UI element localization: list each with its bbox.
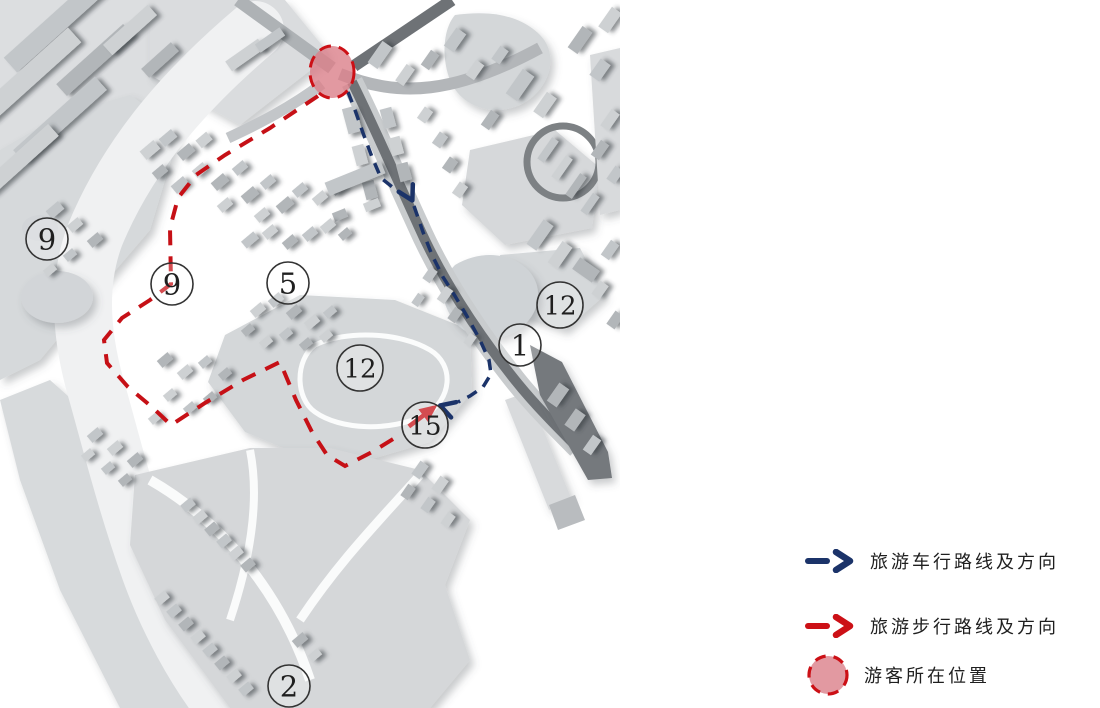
svg-text:12: 12 [343, 354, 376, 384]
legend-label-walking-route: 旅游步行路线及方向 [870, 613, 1059, 639]
location-marker-12: 12 [537, 282, 583, 328]
screenshot-root: 99512121152 旅游车行路线及方向 [0, 0, 1100, 708]
location-marker-15: 15 [402, 402, 448, 448]
location-marker-5: 5 [267, 262, 309, 304]
visitor-location-circle-icon [805, 652, 851, 698]
legend-item-walking-route: 旅游步行路线及方向 [805, 613, 1059, 639]
site-plan-map: 99512121152 [0, 0, 620, 708]
site-map-svg: 99512121152 [0, 0, 620, 708]
svg-text:5: 5 [279, 266, 297, 300]
vehicle-route-arrow-icon [805, 549, 857, 573]
legend: 旅游车行路线及方向 旅游步行路线及方向 游客所在位置 [805, 540, 1085, 708]
svg-text:15: 15 [408, 411, 441, 441]
location-marker-9: 9 [151, 263, 193, 305]
location-marker-12: 12 [337, 345, 383, 391]
legend-label-vehicle-route: 旅游车行路线及方向 [870, 548, 1059, 574]
walking-route-arrow-icon [805, 614, 857, 638]
svg-text:12: 12 [543, 291, 576, 321]
legend-label-visitor-location: 游客所在位置 [864, 662, 990, 688]
svg-text:9: 9 [38, 222, 56, 256]
location-marker-9: 9 [26, 218, 68, 260]
svg-text:1: 1 [511, 328, 529, 362]
visitor-location-marker [310, 46, 354, 98]
svg-text:2: 2 [280, 669, 298, 703]
legend-item-vehicle-route: 旅游车行路线及方向 [805, 548, 1059, 574]
location-marker-2: 2 [268, 665, 310, 707]
svg-text:9: 9 [163, 267, 181, 301]
legend-item-visitor-location: 游客所在位置 [805, 652, 990, 698]
location-marker-1: 1 [499, 324, 541, 366]
